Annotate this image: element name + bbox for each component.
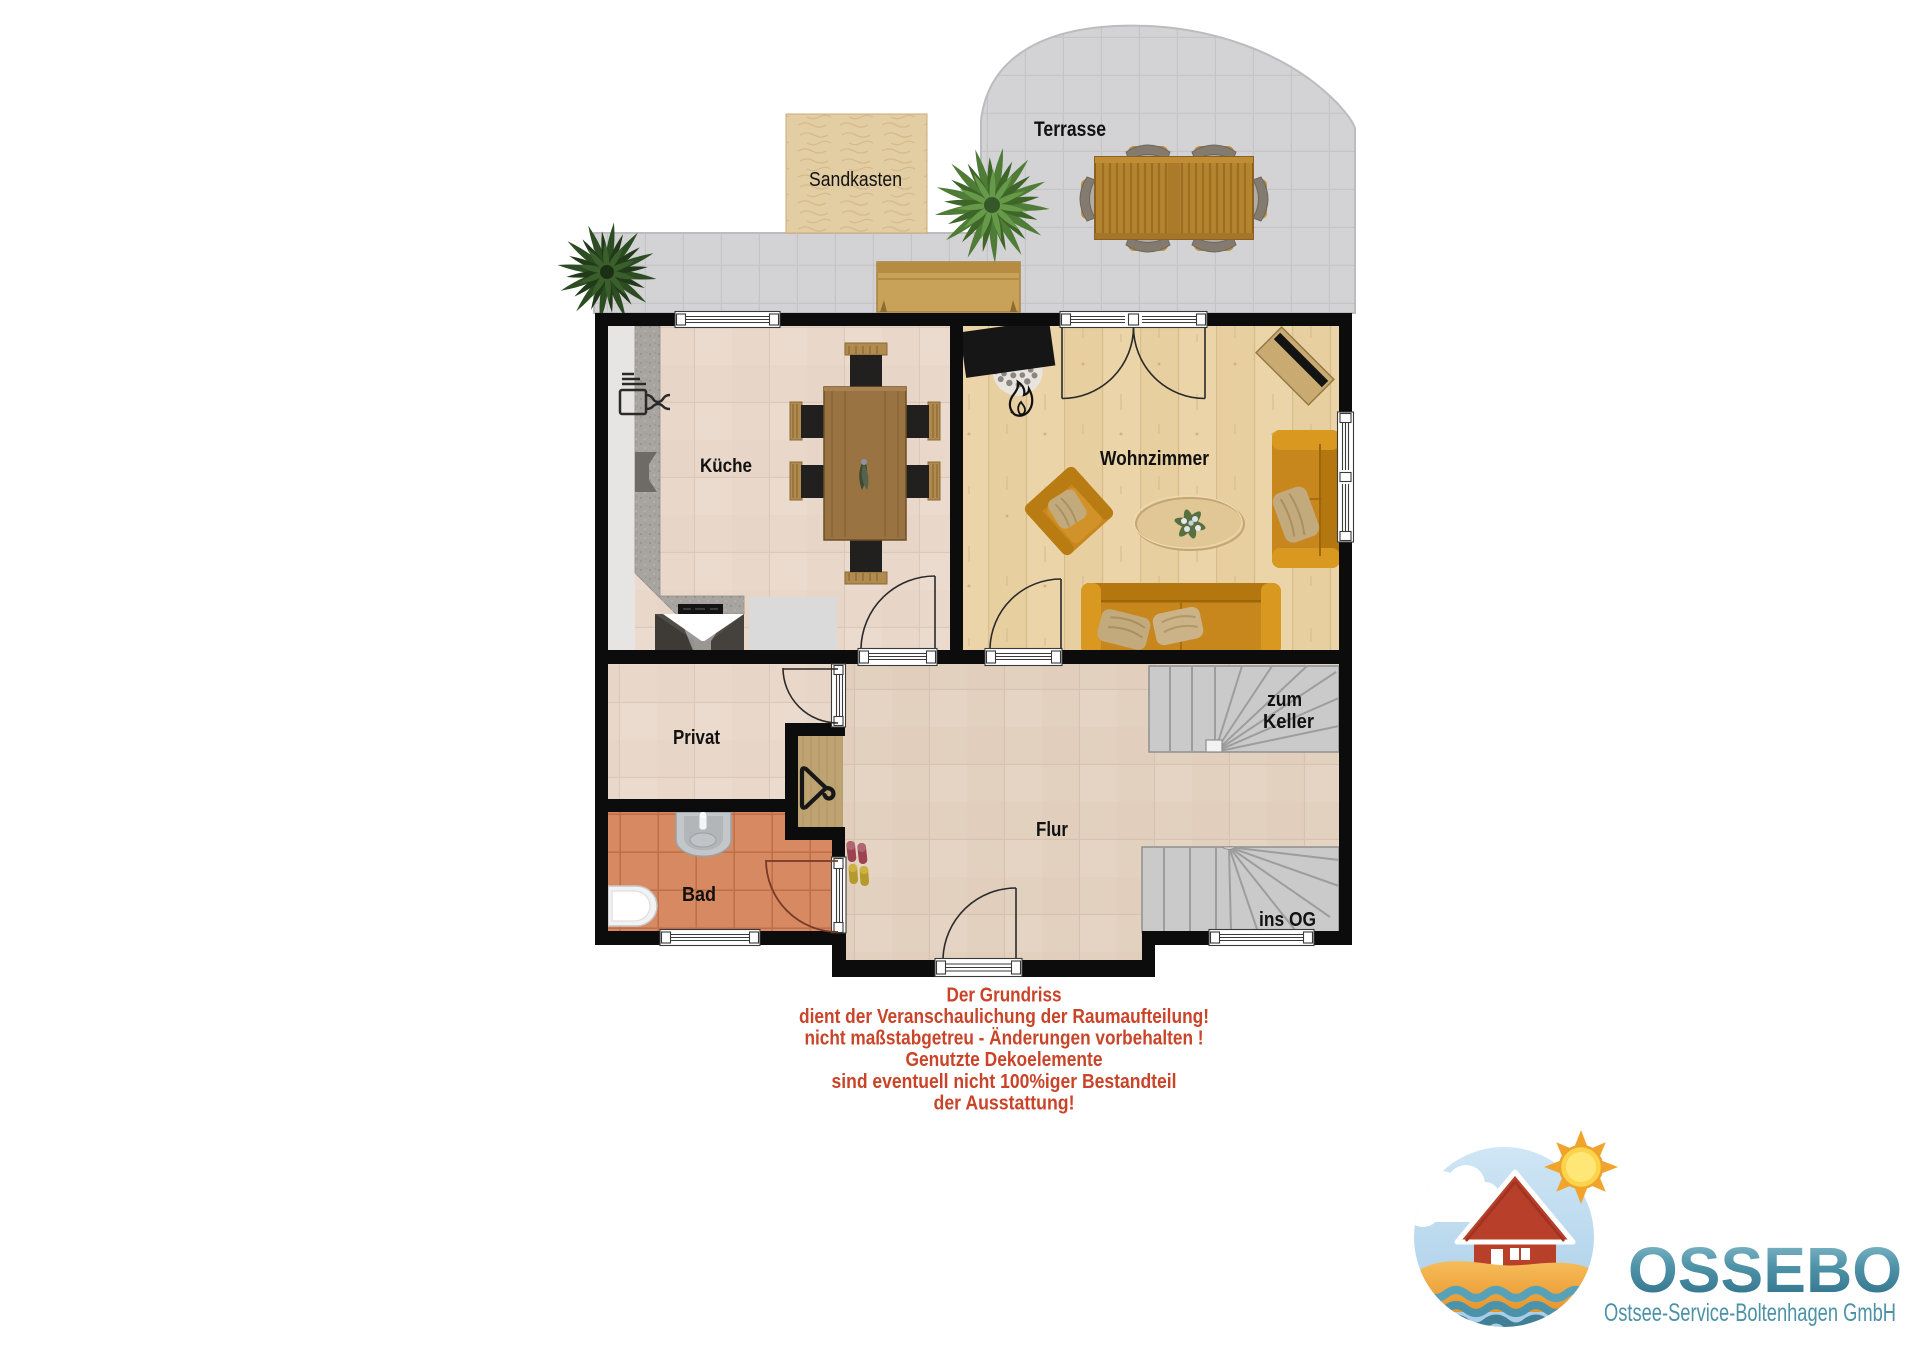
svg-text:Sandkasten: Sandkasten [809,169,902,191]
svg-text:nicht maßstabgetreu - Änderung: nicht maßstabgetreu - Änderungen vorbeha… [805,1027,1204,1050]
svg-text:ins OG: ins OG [1259,909,1316,931]
svg-text:der Ausstattung!: der Ausstattung! [934,1091,1075,1114]
svg-text:Wohnzimmer: Wohnzimmer [1100,448,1209,470]
svg-text:zum: zum [1267,689,1302,711]
svg-text:Keller: Keller [1263,711,1314,733]
svg-text:Bad: Bad [682,884,716,906]
svg-text:Privat: Privat [673,727,720,749]
svg-text:Küche: Küche [700,456,752,477]
svg-text:OSSEBO: OSSEBO [1628,1234,1902,1306]
svg-text:Flur: Flur [1036,818,1068,841]
svg-text:sind eventuell nicht 100%iger: sind eventuell nicht 100%iger Bestandtei… [832,1070,1177,1093]
svg-text:dient der Veranschaulichung de: dient der Veranschaulichung der Raumauft… [799,1005,1209,1028]
svg-text:Der Grundriss: Der Grundriss [947,983,1062,1006]
svg-text:Genutzte Dekoelemente: Genutzte Dekoelemente [906,1048,1103,1071]
svg-text:Terrasse: Terrasse [1034,118,1106,141]
svg-text:Ostsee-Service-Boltenhagen Gmb: Ostsee-Service-Boltenhagen GmbH [1604,1299,1896,1327]
